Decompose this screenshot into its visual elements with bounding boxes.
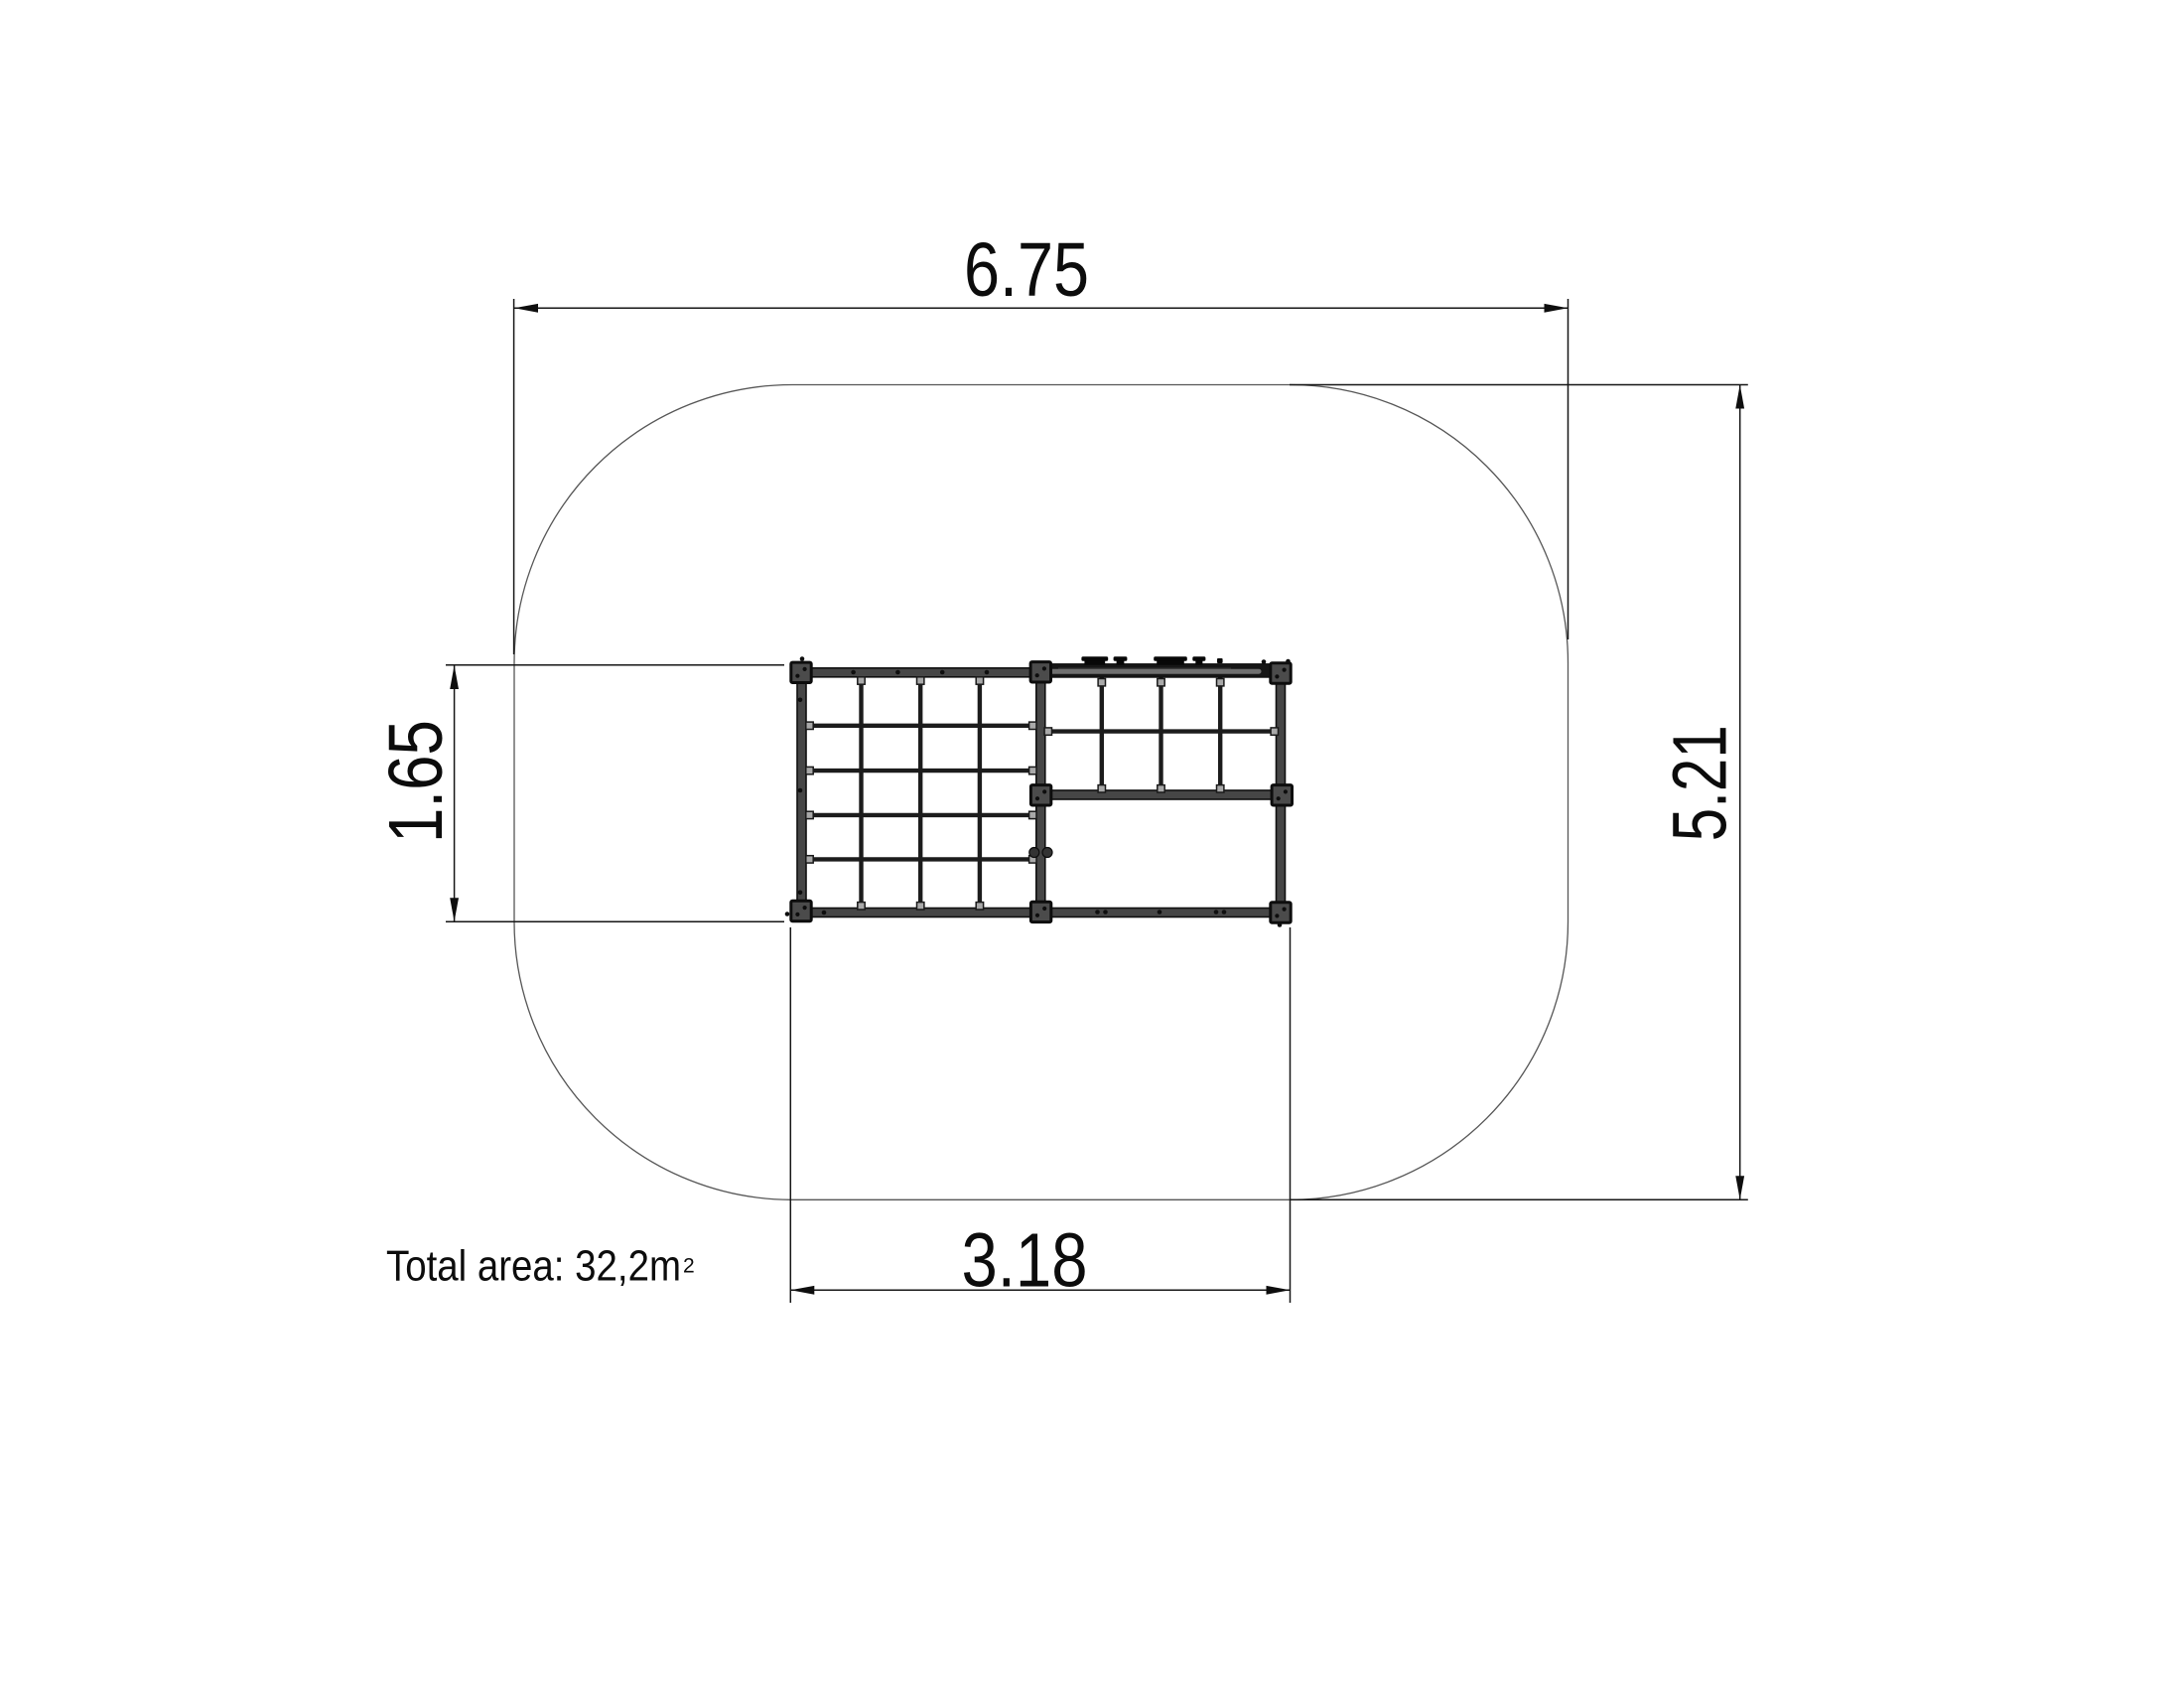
svg-text:5.21: 5.21 <box>1658 725 1743 841</box>
svg-text:2: 2 <box>683 1255 695 1278</box>
svg-text:1.65: 1.65 <box>373 720 459 843</box>
svg-text:Total area: 32,2m: Total area: 32,2m <box>386 1243 681 1291</box>
svg-text:6.75: 6.75 <box>964 227 1089 313</box>
svg-text:3.18: 3.18 <box>962 1218 1088 1304</box>
